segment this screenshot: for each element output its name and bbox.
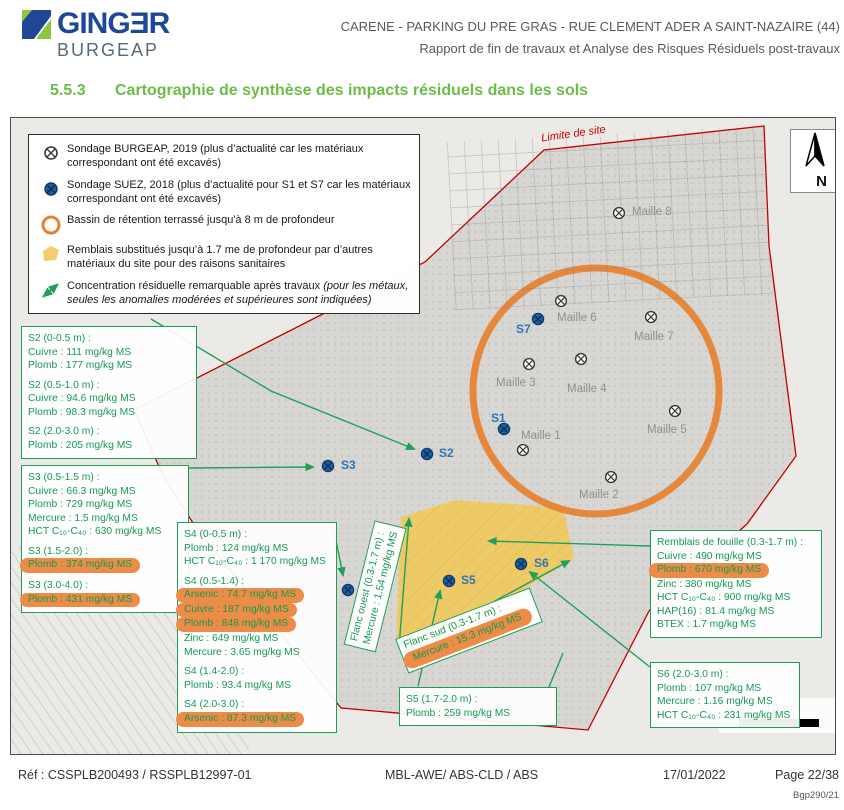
exceedance-highlight: Cuivre : 187 mg/kg MS [176, 603, 297, 618]
logo-mark-icon [20, 8, 53, 41]
legend-item: Remblais substitués jusqu’à 1.7 me de pr… [35, 243, 411, 272]
borehole-label-s6: S6 [534, 556, 549, 570]
grid-cell-label-maille-3: Maille 3 [496, 377, 536, 389]
grid-marker-maille-1 [516, 443, 530, 457]
grid-cell-label-maille-6: Maille 6 [557, 312, 597, 324]
legend-item-label: Remblais substitués jusqu’à 1.7 me de pr… [67, 243, 411, 272]
connector-flank-south [549, 653, 563, 687]
legend-item-label: Bassin de rétention terrassé jusqu'à 8 m… [67, 213, 334, 227]
report-title: CARENE - PARKING DU PRE GRAS - RUE CLEME… [341, 16, 840, 60]
borehole-marker-s4 [341, 583, 355, 597]
measurement-row: Plomb : 93.4 mg/kg MS [184, 679, 330, 693]
measurement-row: Cuivre : 66.3 mg/kg MS [28, 485, 182, 499]
sample-depth-header: S2 (0-0.5 m) : [28, 332, 190, 346]
borehole-label-s5: S5 [461, 573, 476, 587]
exceedance-highlight: Arsenic : 87.3 mg/kg MS [176, 712, 304, 727]
borehole-marker-s7 [531, 312, 545, 326]
brand-name: GINGƎR [57, 8, 169, 40]
site-map: Limite de site N Sondage BURGEAP, 2019 (… [10, 117, 836, 755]
measurement-row: Arsenic : 74.7 mg/kg MS [184, 588, 330, 603]
measurement-row: BTEX : 1.7 mg/kg MS [657, 618, 815, 632]
measurement-row: Plomb : 374 mg/kg MS [28, 558, 182, 573]
measurement-row: Cuivre : 111 mg/kg MS [28, 346, 190, 360]
measurement-row: Mercure : 1.5 mg/kg MS [28, 512, 182, 526]
report-title-line2: Rapport de fin de travaux et Analyse des… [341, 38, 840, 60]
basin-circle-icon [35, 213, 67, 236]
sample-depth-header: S2 (2.0-3.0 m) : [28, 425, 190, 439]
data-box-s3: S3 (0.5-1.5 m) :Cuivre : 66.3 mg/kg MSPl… [21, 465, 189, 613]
measurement-row: HCT C₁₀-C₄₀ : 630 mg/kg MS [28, 525, 182, 539]
measurement-row: Plomb : 848 mg/kg MS [184, 617, 330, 632]
measurement-row: HCT C₁₀-C₄₀ : 900 mg/kg MS [657, 591, 815, 605]
grid-marker-maille-7 [644, 310, 658, 324]
measurement-row: Mercure : 1.16 mg/kg MS [657, 695, 793, 709]
measurement-row: Plomb : 98.3 mg/kg MS [28, 406, 190, 420]
exceedance-highlight: Plomb : 431 mg/kg MS [20, 593, 140, 608]
borehole-marker-s5 [442, 574, 456, 588]
brand-logo: GINGƎR BURGEAP [20, 8, 169, 60]
measurement-row: Plomb : 670 mg/kg MS [657, 563, 815, 578]
measurement-row: Zinc : 380 mg/kg MS [657, 578, 815, 592]
measurement-row: Cuivre : 187 mg/kg MS [184, 603, 330, 618]
grid-cell-label-maille-2: Maille 2 [579, 489, 619, 501]
sample-depth-header: Remblais de fouille (0.3-1.7 m) : [657, 536, 815, 550]
sample-depth-header: S3 (0.5-1.5 m) : [28, 471, 182, 485]
exceedance-highlight: Plomb : 848 mg/kg MS [176, 617, 296, 632]
measurement-row: Plomb : 205 mg/kg MS [28, 439, 190, 453]
connector-s6 [530, 572, 650, 667]
burgeap-marker-icon [35, 142, 67, 163]
measurement-row: Plomb : 431 mg/kg MS [28, 593, 182, 608]
measurement-row: Cuivre : 490 mg/kg MS [657, 550, 815, 564]
borehole-marker-s6 [514, 557, 528, 571]
measurement-row: Plomb : 107 mg/kg MS [657, 682, 793, 696]
grid-marker-maille-8 [612, 206, 626, 220]
sample-depth-header: S4 (2.0-3.0) : [184, 698, 330, 712]
brand-subname: BURGEAP [57, 40, 169, 60]
legend-item: Sondage SUEZ, 2018 (plus d’actualité pou… [35, 178, 411, 207]
legend-item: Bassin de rétention terrassé jusqu'à 8 m… [35, 213, 411, 236]
section-number: 5.5.3 [50, 82, 86, 100]
grid-marker-maille-6 [554, 294, 568, 308]
grid-marker-maille-5 [668, 404, 682, 418]
footer-doc-code: Bgp290/21 [793, 790, 839, 801]
measurement-row: Plomb : 124 mg/kg MS [184, 542, 330, 556]
backfill-polygon-icon [35, 243, 67, 264]
borehole-label-s7: S7 [516, 322, 531, 336]
measurement-row: Arsenic : 87.3 mg/kg MS [184, 712, 330, 727]
measurement-row: Mercure : 3.65 mg/kg MS [184, 646, 330, 660]
measurement-row: Zinc : 649 mg/kg MS [184, 632, 330, 646]
page-footer: Réf : CSSPLB200493 / RSSPLB12997-01 MBL-… [0, 762, 844, 810]
north-arrow-icon [797, 130, 831, 172]
data-box-s6: S6 (2.0-3.0 m) :Plomb : 107 mg/kg MSMerc… [650, 662, 800, 728]
grid-cell-label-maille-7: Maille 7 [634, 331, 674, 343]
sample-depth-header: S4 (1.4-2.0) : [184, 665, 330, 679]
footer-page: Page 22/38 [775, 768, 839, 782]
measurement-row: HCT C₁₀-C₄₀ : 1 170 mg/kg MS [184, 555, 330, 569]
grid-marker-maille-4 [574, 352, 588, 366]
sample-depth-header: S3 (3.0-4.0) : [28, 579, 182, 593]
grid-cell-label-maille-1: Maille 1 [521, 430, 561, 442]
sample-depth-header: S2 (0.5-1.0 m) : [28, 379, 190, 393]
green-arrow-icon [35, 279, 67, 300]
footer-ref: Réf : CSSPLB200493 / RSSPLB12997-01 [18, 768, 251, 782]
report-page: GINGƎR BURGEAP CARENE - PARKING DU PRE G… [0, 0, 844, 810]
measurement-row: HAP(16) : 81.4 mg/kg MS [657, 605, 815, 619]
borehole-marker-s3 [321, 459, 335, 473]
measurement-row: Plomb : 177 mg/kg MS [28, 359, 190, 373]
exceedance-highlight: Arsenic : 74.7 mg/kg MS [176, 588, 304, 603]
legend-item: Concentration résiduelle remarquable apr… [35, 279, 411, 308]
measurement-row: Cuivre : 94.6 mg/kg MS [28, 392, 190, 406]
data-box-s4: S4 (0-0.5 m) :Plomb : 124 mg/kg MSHCT C₁… [177, 522, 337, 733]
north-label: N [791, 173, 836, 190]
borehole-marker-s2 [420, 447, 434, 461]
grid-cell-label-maille-5: Maille 5 [647, 424, 687, 436]
borehole-label-s2: S2 [439, 446, 454, 460]
legend-item: Sondage BURGEAP, 2019 (plus d’actualité … [35, 142, 411, 171]
data-box-remblais: Remblais de fouille (0.3-1.7 m) :Cuivre … [650, 530, 822, 638]
north-box: N [790, 129, 836, 193]
sample-depth-header: S6 (2.0-3.0 m) : [657, 668, 793, 682]
sample-depth-header: S4 (0-0.5 m) : [184, 528, 330, 542]
concentration-arrow-backfill [489, 541, 650, 546]
footer-authors: MBL-AWE/ ABS-CLD / ABS [385, 768, 538, 782]
measurement-row: Plomb : 259 mg/kg MS [406, 707, 550, 721]
data-box-s2: S2 (0-0.5 m) :Cuivre : 111 mg/kg MSPlomb… [21, 326, 197, 459]
exceedance-highlight: Plomb : 670 mg/kg MS [649, 563, 769, 578]
grid-cell-label-maille-8: Maille 8 [632, 206, 672, 218]
sample-depth-header: S3 (1.5-2.0) : [28, 545, 182, 559]
sample-depth-header: S5 (1.7-2.0 m) : [406, 693, 550, 707]
grid-cell-label-maille-4: Maille 4 [567, 383, 607, 395]
concentration-arrow-s3 [189, 467, 313, 468]
measurement-row: HCT C₁₀-C₄₀ : 231 mg/kg MS [657, 709, 793, 723]
data-box-s5: S5 (1.7-2.0 m) :Plomb : 259 mg/kg MS [399, 687, 557, 726]
suez-marker-icon [35, 178, 67, 199]
section-title: Cartographie de synthèse des impacts rés… [115, 82, 588, 100]
legend-item-label: Sondage SUEZ, 2018 (plus d’actualité pou… [67, 178, 411, 207]
borehole-label-s3: S3 [341, 458, 356, 472]
legend-item-label: Concentration résiduelle remarquable apr… [67, 279, 411, 308]
legend-panel: Sondage BURGEAP, 2019 (plus d’actualité … [28, 134, 420, 314]
footer-date: 17/01/2022 [663, 768, 726, 782]
exceedance-highlight: Plomb : 374 mg/kg MS [20, 558, 140, 573]
sample-depth-header: S4 (0.5-1.4) : [184, 575, 330, 589]
grid-marker-maille-2 [604, 470, 618, 484]
measurement-row: Plomb : 729 mg/kg MS [28, 498, 182, 512]
legend-item-label: Sondage BURGEAP, 2019 (plus d’actualité … [67, 142, 411, 171]
grid-marker-maille-3 [522, 357, 536, 371]
borehole-label-s1: S1 [491, 411, 506, 425]
report-title-line1: CARENE - PARKING DU PRE GRAS - RUE CLEME… [341, 16, 840, 38]
page-header: GINGƎR BURGEAP CARENE - PARKING DU PRE G… [0, 0, 844, 70]
